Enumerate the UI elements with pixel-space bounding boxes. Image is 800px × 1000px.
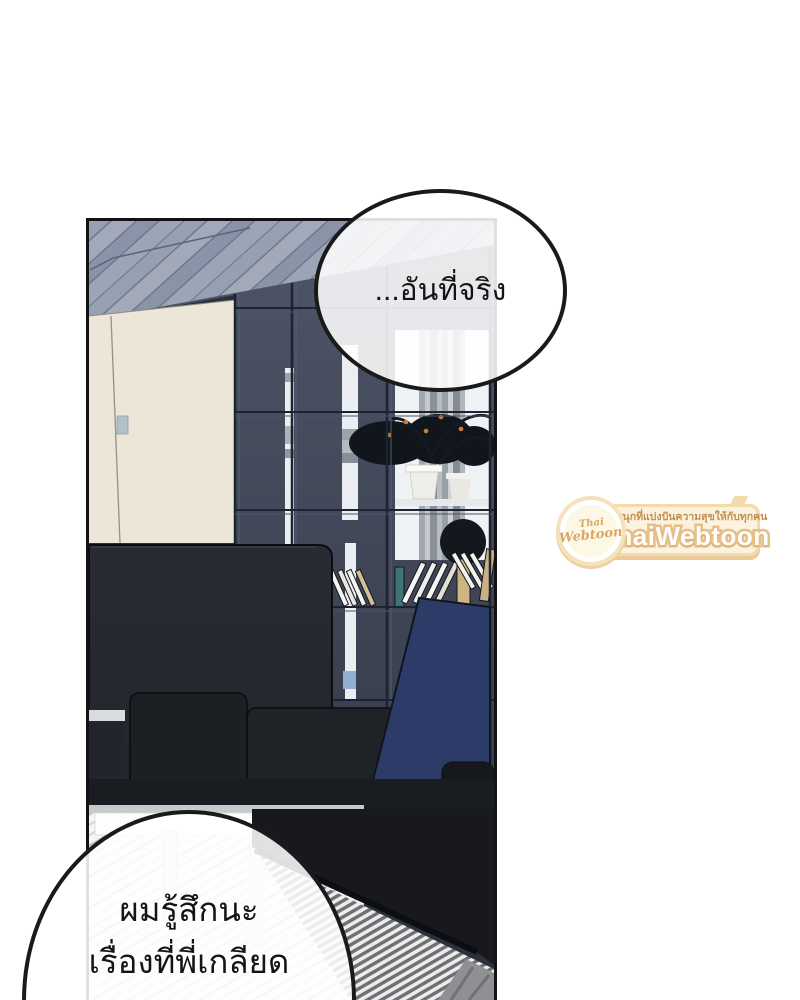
speech-text-bottom-line1: ผมรู้สึกนะ <box>89 884 290 936</box>
wall-switch <box>117 416 128 434</box>
speech-text-top: ...อันที่จริง <box>375 267 507 314</box>
speech-bubble-top: ...อันที่จริง <box>314 189 567 392</box>
comic-page: ...อันที่จริง ผมรู้สึกนะ เรื่องที่พี่เกล… <box>0 0 800 1000</box>
thaiwebtoon-logo-icon: Thai Webtoon <box>556 496 626 566</box>
speech-text-bottom-line2: เรื่องที่พี่เกลียด <box>89 936 290 988</box>
logo-text-line2: Webtoon <box>559 526 624 547</box>
cream-wall-panels <box>89 300 235 543</box>
thaiwebtoon-watermark: เว็บสนุกที่แบ่งปันความสุขให้กับทุกคน Tha… <box>556 494 761 572</box>
speech-text-bottom: ผมรู้สึกนะ เรื่องที่พี่เกลียด <box>89 884 290 988</box>
